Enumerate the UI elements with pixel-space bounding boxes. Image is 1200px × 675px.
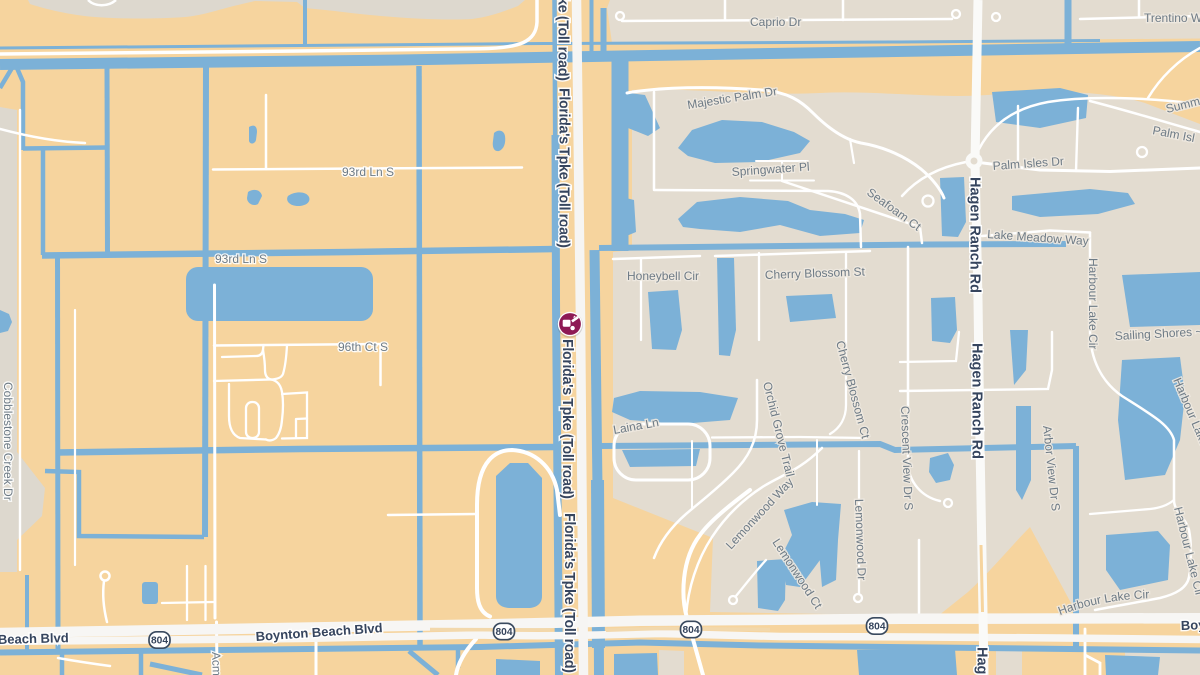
- svg-text:804: 804: [683, 625, 700, 636]
- svg-text:Hagen Ranch Rd: Hagen Ranch Rd: [974, 647, 990, 675]
- svg-text:Caprio Dr: Caprio Dr: [750, 15, 801, 29]
- svg-text:Beach Blvd: Beach Blvd: [0, 630, 69, 647]
- svg-text:93rd Ln S: 93rd Ln S: [342, 165, 394, 179]
- svg-text:Florida's Tpke (Toll road): Florida's Tpke (Toll road): [561, 513, 577, 673]
- svg-text:Boynton: Boynton: [1181, 616, 1200, 633]
- svg-text:Trentino W: Trentino W: [1144, 11, 1200, 25]
- svg-text:Honeybell Cir: Honeybell Cir: [627, 269, 699, 283]
- svg-text:Florida's Tpke (Toll road): Florida's Tpke (Toll road): [559, 339, 575, 499]
- svg-text:93rd Ln S: 93rd Ln S: [215, 252, 267, 266]
- svg-text:Acme Dairy Rd: Acme Dairy Rd: [209, 652, 226, 675]
- svg-text:Hagen Ranch Rd: Hagen Ranch Rd: [969, 343, 985, 459]
- svg-text:Lemonwood Dr: Lemonwood Dr: [852, 499, 869, 581]
- svg-text:804: 804: [869, 621, 886, 632]
- svg-text:Florida's Tpke (Toll road): Florida's Tpke (Toll road): [555, 0, 571, 81]
- svg-text:804: 804: [496, 627, 513, 638]
- svg-text:Florida's Tpke (Toll road): Florida's Tpke (Toll road): [556, 88, 572, 248]
- svg-text:804: 804: [151, 635, 168, 646]
- svg-text:96th Ct S: 96th Ct S: [338, 340, 388, 354]
- svg-text:Hagen Ranch Rd: Hagen Ranch Rd: [967, 177, 983, 293]
- svg-text:Cobblestone Creek Dr: Cobblestone Creek Dr: [1, 382, 15, 501]
- svg-text:Harbour Lake Cir: Harbour Lake Cir: [1086, 258, 1100, 349]
